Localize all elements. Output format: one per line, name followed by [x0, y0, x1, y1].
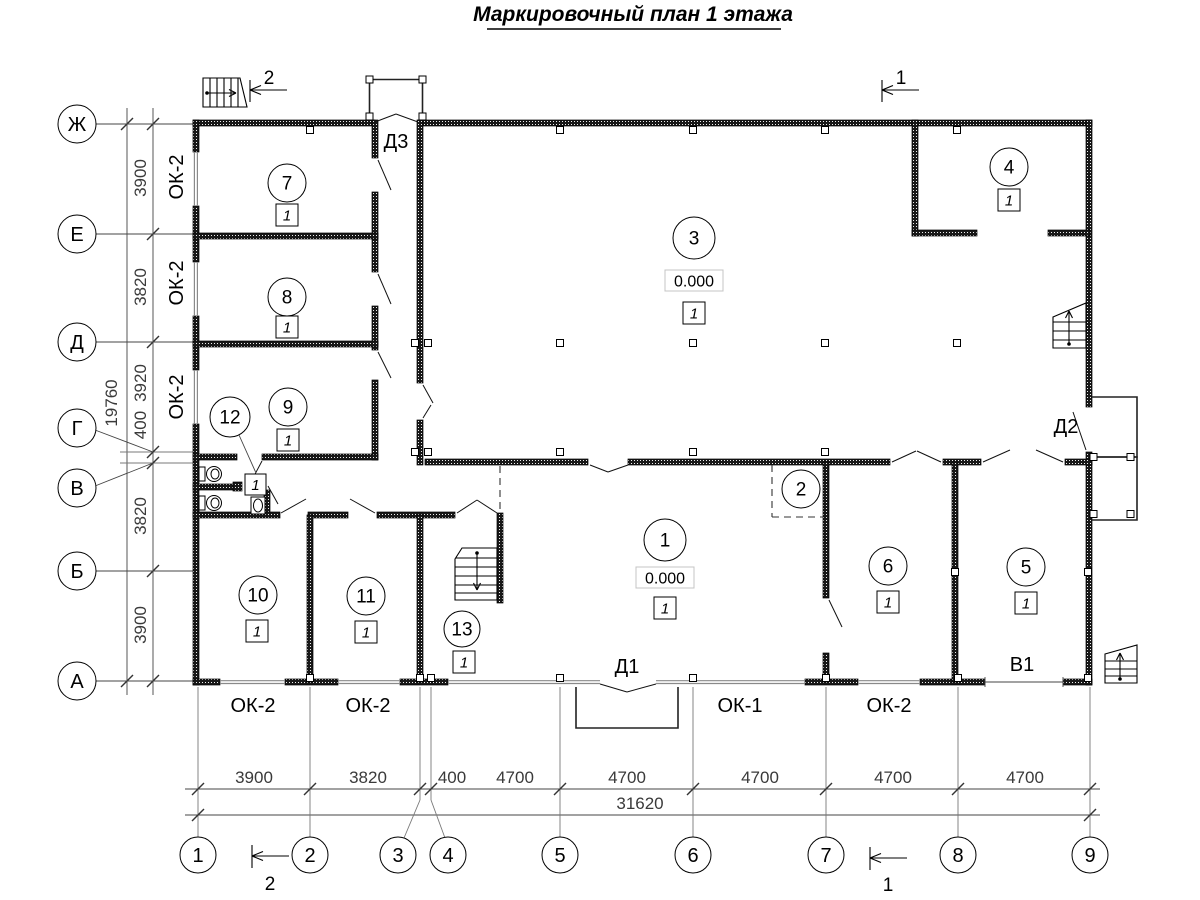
room-12-number: 12	[219, 408, 240, 429]
dim-bottom-overall: 31620	[616, 794, 663, 813]
axis-col-5: 5	[554, 845, 565, 867]
room-8-number: 8	[282, 288, 293, 309]
section-mark-1-top: 1	[896, 68, 907, 89]
room-10-number: 10	[247, 586, 268, 607]
dim-bottom-1: 3820	[349, 768, 387, 787]
dim-left-0: 3900	[131, 159, 150, 197]
dim-bottom-7: 4700	[1006, 768, 1044, 787]
room-11-tag: 1	[362, 624, 370, 641]
dim-left-3: 400	[131, 411, 150, 439]
window-label-bottom-3: ОК-2	[867, 695, 912, 717]
axis-row-e: Е	[70, 224, 83, 246]
axis-col-4: 4	[442, 845, 453, 867]
room-4-tag: 1	[1005, 192, 1013, 209]
axis-col-9: 9	[1084, 845, 1095, 867]
room-9-tag: 1	[284, 432, 292, 449]
door-label-d3: Д3	[384, 131, 409, 153]
axis-row-zh: Ж	[68, 114, 87, 136]
stair-top-left	[203, 78, 247, 107]
dim-bottom-0: 3900	[235, 768, 273, 787]
axis-col-3: 3	[392, 845, 403, 867]
plan-canvas: Маркировочный план 1 этажа 3900 3820 39	[0, 0, 1200, 900]
room-1-number: 1	[660, 531, 671, 552]
dim-left-2: 3920	[131, 364, 150, 402]
room-3-elevation: 0.000	[674, 274, 714, 291]
dim-bottom-2: 400	[438, 768, 466, 787]
room-5-number: 5	[1021, 558, 1032, 579]
section-mark-2-top: 2	[264, 68, 275, 89]
axis-row-g: Г	[72, 418, 83, 440]
stair-bottom-right	[1105, 645, 1137, 683]
room-13-tag: 1	[460, 654, 468, 671]
dashed-openings	[500, 465, 823, 517]
door-label-d2: Д2	[1054, 416, 1079, 438]
axis-bubbles-bottom: 1 2 3 4 5 6 7 8 9	[180, 837, 1108, 873]
dim-bottom-6: 4700	[874, 768, 912, 787]
room-6-number: 6	[883, 557, 894, 578]
room-annotations: 7 1 8 1 9 1 12 1 3 0.000 1 4 1 1 0.000 1…	[210, 148, 1045, 673]
dim-bottom-4: 4700	[608, 768, 646, 787]
axis-col-1: 1	[192, 845, 203, 867]
gate-label-v1: В1	[1010, 654, 1034, 676]
window-label-bottom-0: ОК-2	[231, 695, 276, 717]
room-6-tag: 1	[884, 594, 892, 611]
page-title: Маркировочный план 1 этажа	[473, 3, 793, 26]
room-2-number: 2	[796, 480, 807, 501]
axis-row-d: Д	[70, 332, 84, 354]
dim-left-overall: 19760	[102, 379, 121, 426]
window-label-bottom-1: ОК-2	[346, 695, 391, 717]
axis-row-v: В	[70, 478, 83, 500]
porch-bottom	[576, 687, 678, 728]
toilet-tank-1	[199, 467, 205, 481]
columns	[307, 127, 1092, 682]
door-label-d1: Д1	[615, 656, 640, 678]
room-11-number: 11	[356, 587, 376, 608]
toilet-tank-2	[199, 496, 205, 510]
stair-room13	[455, 548, 497, 600]
window-label-left-1: ОК-2	[166, 261, 188, 306]
room-10-tag: 1	[253, 623, 261, 640]
room-8-tag: 1	[283, 319, 291, 336]
room-3-tag: 1	[690, 305, 698, 322]
window-label-left-0: ОК-2	[166, 155, 188, 200]
axis-col-6: 6	[687, 845, 698, 867]
entrance-vestibule-top	[366, 76, 426, 120]
dim-left-5: 3900	[131, 606, 150, 644]
window-label-bottom-2: ОК-1	[718, 695, 763, 717]
section-mark-1-bottom: 1	[883, 875, 894, 896]
dim-bottom-3: 4700	[496, 768, 534, 787]
walls	[193, 120, 1092, 685]
dim-left-4: 3820	[131, 497, 150, 535]
room-9-number: 9	[283, 398, 294, 419]
window-label-left-2: ОК-2	[166, 375, 188, 420]
room-7-number: 7	[282, 174, 293, 195]
axis-col-7: 7	[820, 845, 831, 867]
room-3-number: 3	[689, 229, 700, 250]
dim-left-1: 3820	[131, 268, 150, 306]
opening-labels: Д3 Д1 Д2 В1 ОК-2 ОК-2 ОК-2 ОК-2 ОК-2 ОК-…	[166, 131, 1078, 717]
room-1-elevation: 0.000	[645, 571, 685, 588]
room-13-number: 13	[451, 620, 472, 641]
dim-bottom-5: 4700	[741, 768, 779, 787]
stair-right-interior	[1053, 303, 1086, 348]
drawing-title: Маркировочный план 1 этажа	[473, 3, 793, 29]
room-12-tag: 1	[251, 477, 259, 494]
axis-row-b: Б	[70, 561, 83, 583]
axis-col-2: 2	[304, 845, 315, 867]
room-4-number: 4	[1004, 158, 1015, 179]
axis-col-8: 8	[952, 845, 963, 867]
section-mark-2-bottom: 2	[265, 874, 276, 895]
room-5-tag: 1	[1022, 595, 1030, 612]
room-1-tag: 1	[661, 600, 669, 617]
porch-right	[1090, 397, 1137, 520]
axis-row-a: А	[70, 671, 84, 693]
floor-plan-drawing: Маркировочный план 1 этажа 3900 3820 39	[0, 0, 1200, 900]
room-7-tag: 1	[283, 207, 291, 224]
